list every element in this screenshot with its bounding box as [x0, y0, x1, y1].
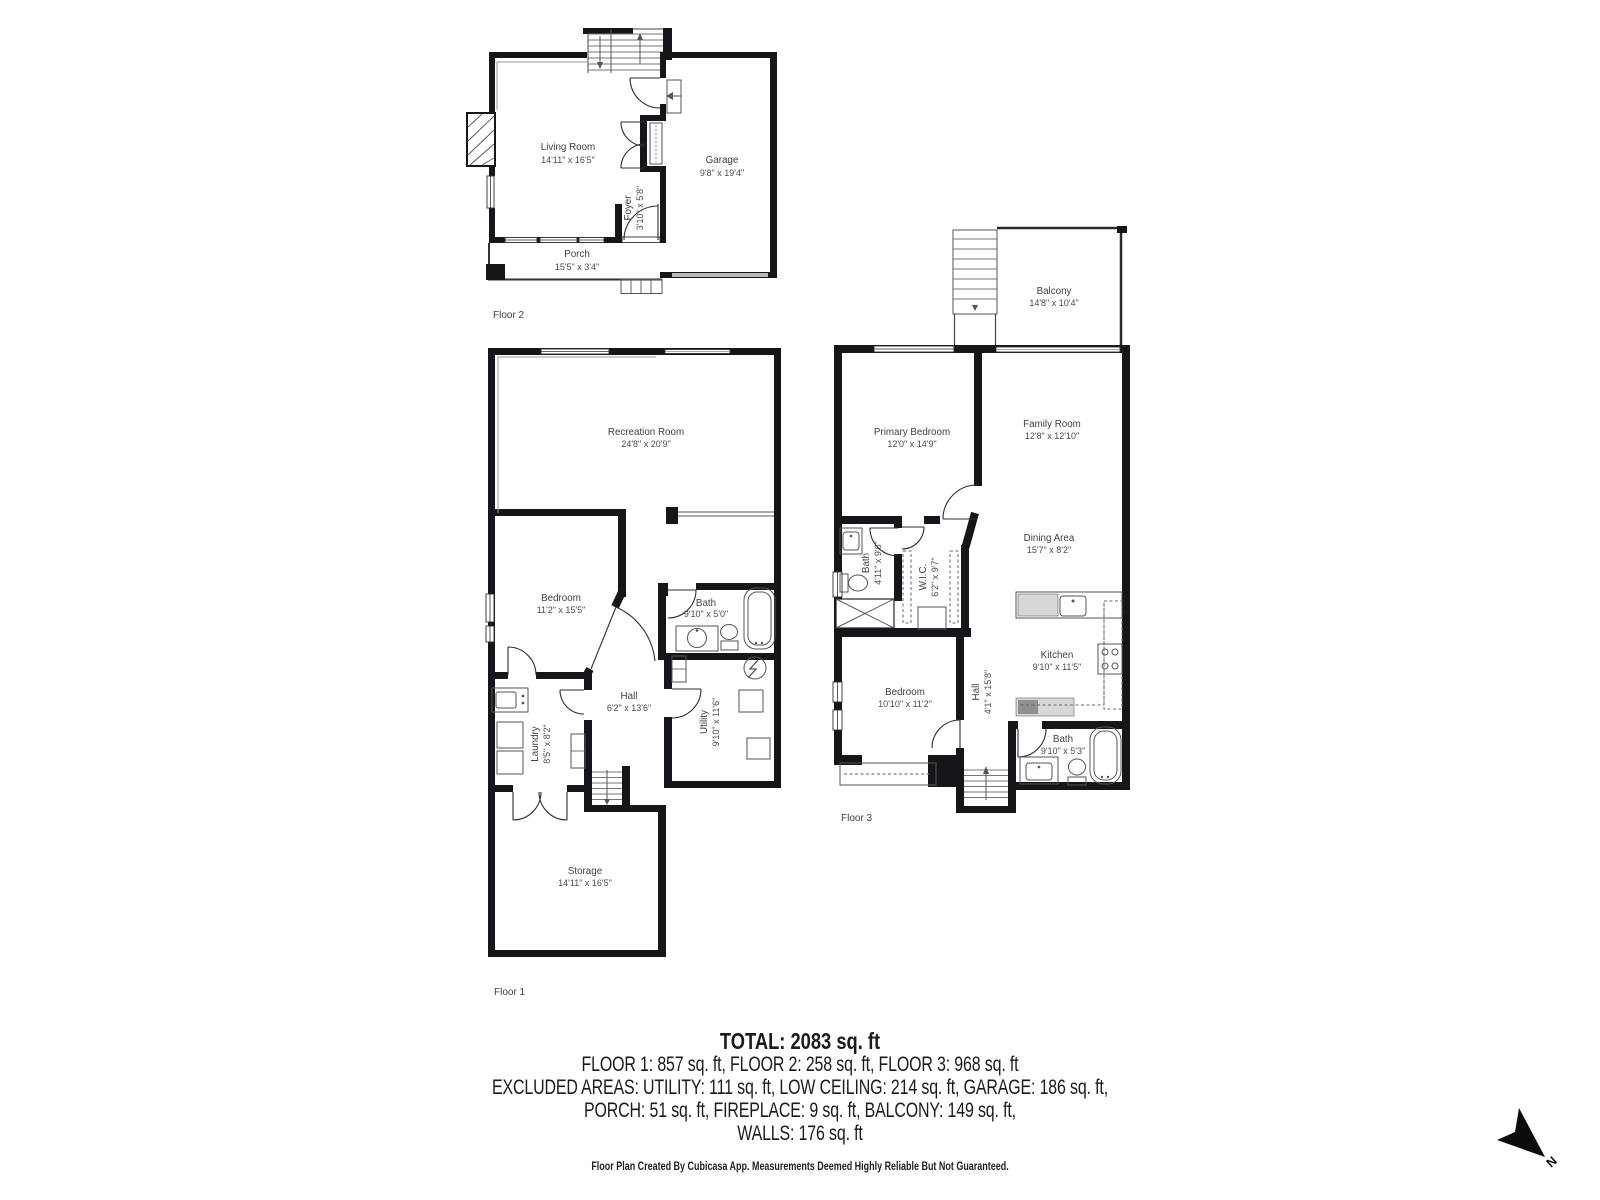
- disclaimer-text: Floor Plan Created By Cubicasa App. Meas…: [176, 1161, 1424, 1173]
- floor2-tag: Floor 2: [493, 310, 525, 321]
- laundry-dims: 8'5" x 8'2": [542, 724, 552, 763]
- closet-double-doors: [621, 115, 666, 172]
- sliding-door: [996, 347, 1120, 352]
- floor1-plan: Recreation Room 24'8" x 20'9" Bedroom 11…: [486, 348, 781, 998]
- compass-north-label: N: [1544, 1154, 1560, 1170]
- staircase-floor3: [964, 766, 1008, 800]
- bedroom3-door-arc: [932, 720, 960, 748]
- toilet-icon: [840, 574, 868, 592]
- toilet-icon: [721, 625, 739, 651]
- bath1-fixtures: [676, 588, 775, 651]
- bedroom1-label: Bedroom: [541, 593, 581, 604]
- wic-dims: 6'2" x 9'7": [930, 557, 940, 596]
- electrical-panel-icon: [744, 657, 766, 679]
- floorplan-page: Living Room 14'11" x 16'5" Garage 9'8" x…: [0, 0, 1600, 1200]
- bedroom3-label: Bedroom: [885, 687, 925, 698]
- sink-icon: [840, 528, 862, 554]
- kitchen-sink-icon: [1060, 596, 1086, 616]
- hall3-dims: 4'1" x 15'8": [983, 670, 993, 714]
- bathtub-icon: [1090, 727, 1121, 784]
- floor1-tag: Floor 1: [494, 987, 526, 998]
- floorplan-drawing: Living Room 14'11" x 16'5" Garage 9'8" x…: [0, 0, 1600, 1200]
- laundry-sink-icon: [492, 688, 528, 712]
- window: [833, 682, 842, 702]
- excluded-areas-line2: PORCH: 51 sq. ft, FIREPLACE: 9 sq. ft, B…: [192, 1099, 1408, 1122]
- recreation-room-dims: 24'8" x 20'9": [621, 439, 670, 449]
- foyer-dims: 3'10" x 5'8": [635, 186, 645, 230]
- interior-door-arc: [630, 78, 660, 108]
- living-room-label: Living Room: [541, 142, 595, 153]
- excluded-areas-line1: EXCLUDED AREAS: UTILITY: 111 sq. ft, LOW…: [192, 1076, 1408, 1099]
- balcony-label: Balcony: [1037, 286, 1072, 297]
- window: [579, 238, 604, 243]
- garage-dims: 9'8" x 19'4": [700, 168, 744, 178]
- wic-label: W.I.C.: [918, 564, 929, 591]
- bath-upper-label: Bath: [861, 553, 872, 573]
- floor3-plan: Balcony 14'8" x 10'4" Primary Bedroom 12…: [833, 226, 1130, 824]
- storage-double-doors: [513, 792, 567, 820]
- area-summary: TOTAL: 2083 sq. ft FLOOR 1: 857 sq. ft, …: [0, 1029, 1600, 1145]
- furnace-icon: [747, 738, 770, 759]
- storage-dims: 14'11" x 16'5": [558, 878, 612, 888]
- window: [833, 572, 842, 597]
- storage-label: Storage: [568, 866, 603, 877]
- recreation-room-label: Recreation Room: [608, 427, 684, 438]
- family-room-label: Family Room: [1023, 419, 1081, 430]
- bath-lower-dims: 9'10" x 5'3": [1041, 746, 1085, 756]
- dryer-icon: [497, 751, 523, 774]
- kitchen-label: Kitchen: [1041, 650, 1074, 661]
- staircase-floor1: [592, 770, 622, 805]
- fireplace-icon: [467, 113, 495, 166]
- window: [486, 594, 494, 622]
- stove-icon: [1098, 644, 1122, 674]
- linen-closet: [836, 599, 894, 628]
- utility-fixtures: [672, 656, 770, 759]
- staircase-balcony: [953, 230, 997, 345]
- window: [833, 710, 842, 730]
- window: [486, 626, 494, 642]
- porch-dims: 15'5" x 3'4": [555, 262, 599, 272]
- family-room-dims: 12'8" x 12'10": [1025, 431, 1079, 441]
- garage-label: Garage: [706, 155, 739, 166]
- toilet-icon: [1068, 759, 1086, 785]
- porch-label: Porch: [564, 249, 590, 260]
- hall3-label: Hall: [971, 684, 982, 701]
- water-heater-icon: [739, 690, 763, 712]
- walls-area-line: WALLS: 176 sq. ft: [192, 1122, 1408, 1145]
- hall1-label: Hall: [621, 691, 638, 702]
- floor-areas-line: FLOOR 1: 857 sq. ft, FLOOR 2: 258 sq. ft…: [192, 1053, 1408, 1076]
- bedroom3-dims: 10'10" x 11'2": [878, 699, 932, 709]
- window: [874, 346, 954, 352]
- bath-upper-dims: 4'11" x 9'6": [873, 541, 883, 585]
- window: [487, 176, 494, 208]
- utility-label: Utility: [699, 710, 710, 734]
- garage-door: [666, 80, 768, 277]
- bathtub-icon: [744, 588, 775, 649]
- bath1-label: Bath: [696, 598, 716, 609]
- primary-bedroom-dims: 12'0" x 14'9": [887, 439, 936, 449]
- low-ceiling-band: [840, 763, 936, 785]
- balcony-dims: 14'8" x 10'4": [1029, 298, 1078, 308]
- dining-area-label: Dining Area: [1024, 533, 1075, 544]
- floor2-plan: Living Room 14'11" x 16'5" Garage 9'8" x…: [467, 28, 777, 321]
- washer-icon: [497, 722, 523, 748]
- sink-icon: [1020, 757, 1058, 784]
- railing: [678, 512, 774, 516]
- low-ceiling-line: [497, 62, 587, 110]
- kitchen-dims: 9'10" x 11'5": [1033, 662, 1082, 672]
- laundry-label: Laundry: [530, 726, 541, 762]
- sink-icon: [676, 626, 718, 651]
- dining-area-dims: 15'7" x 8'2": [1027, 545, 1071, 555]
- hall1-dims: 6'2" x 13'6": [607, 703, 651, 713]
- primary-bedroom-label: Primary Bedroom: [874, 427, 950, 438]
- foyer-label: Foyer: [623, 195, 634, 221]
- hall-diagonal-door-arc: [591, 607, 655, 669]
- bedroom-door-arc: [508, 647, 536, 675]
- bedroom1-dims: 11'2" x 15'5": [537, 605, 586, 615]
- cabinet-icon: [571, 734, 585, 768]
- window: [540, 238, 577, 243]
- bath-lower-label: Bath: [1053, 734, 1073, 745]
- window: [541, 349, 609, 354]
- staircase-floor2: [583, 28, 672, 73]
- window: [665, 350, 730, 354]
- utility-dims: 9'10" x 11'6": [711, 698, 721, 747]
- wic-door-arc: [902, 527, 924, 549]
- appliance-icon: [1018, 700, 1038, 714]
- floor2-windows: [487, 176, 604, 243]
- floor3-tag: Floor 3: [841, 813, 873, 824]
- living-room-dims: 14'11" x 16'5": [541, 155, 595, 165]
- utility-door-arc: [672, 689, 701, 718]
- porch-steps: [621, 280, 662, 294]
- floor1-windows: [486, 349, 730, 642]
- total-area-line: TOTAL: 2083 sq. ft: [176, 1029, 1424, 1053]
- laundry-door-arc: [560, 690, 584, 714]
- window: [505, 238, 537, 243]
- bath1-dims: 9'10" x 5'0": [684, 609, 728, 619]
